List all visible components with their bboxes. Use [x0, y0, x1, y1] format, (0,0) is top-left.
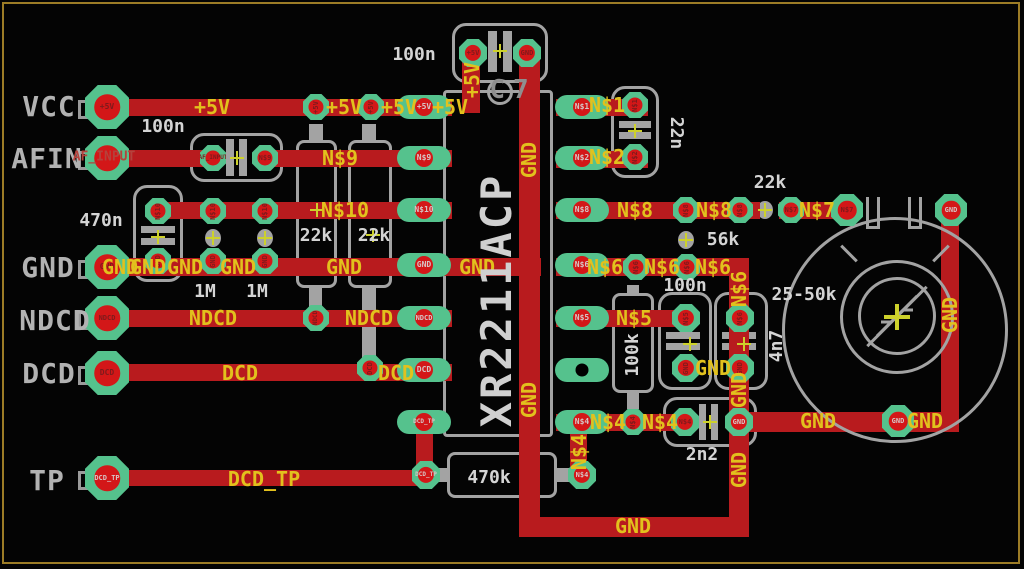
pad-1m-b-top[interactable]: N$10	[252, 198, 278, 224]
net-label: GND	[729, 452, 749, 488]
pad-dcd[interactable]: DCD	[85, 351, 129, 395]
net-label: GND	[800, 411, 836, 431]
net-label: GND	[326, 257, 362, 277]
net-label: N$2	[589, 147, 625, 167]
net-label: DCD_TP	[228, 469, 300, 489]
pad-470n-top[interactable]: N$10	[145, 198, 171, 224]
net-label: N$4	[590, 412, 626, 432]
value-label-100n-filter: 100n	[663, 277, 706, 295]
net-label: GND	[940, 297, 960, 333]
pad-1m-a-top[interactable]: N$10	[200, 198, 226, 224]
origin-cross-icon	[206, 231, 220, 245]
net-label: +5V	[326, 97, 362, 117]
net-label: GND	[729, 372, 749, 408]
net-label: GND	[519, 382, 539, 418]
origin-cross-icon	[679, 233, 693, 247]
resistor-lead	[627, 285, 639, 295]
net-label: GND	[907, 411, 943, 431]
potentiometer-tab	[908, 197, 922, 229]
resistor-lead	[362, 124, 376, 142]
chip-pad-n10[interactable]: N$10	[397, 198, 451, 222]
chip-ref-label: C7	[489, 77, 536, 103]
pad-vcc[interactable]: +5V	[85, 85, 129, 129]
origin-cross-icon	[884, 304, 910, 330]
net-label: N$4	[569, 434, 589, 470]
io-label-gnd: GND	[21, 254, 75, 282]
net-label: +5V	[462, 62, 482, 98]
net-label: DCD	[378, 363, 414, 383]
net-label: N$5	[616, 308, 652, 328]
resistor-lead	[556, 468, 569, 482]
net-label: GND	[130, 257, 166, 277]
origin-cross-icon	[628, 124, 642, 138]
net-label: N$1	[589, 95, 625, 115]
trace-gnd-center-vertical[interactable]	[519, 53, 540, 537]
pad-ndcd[interactable]: NDCD	[85, 296, 129, 340]
net-label: N$7	[799, 200, 835, 220]
pad-100n-filter-top[interactable]: N$5	[672, 304, 700, 332]
value-label-22k-b: 22k	[358, 227, 391, 245]
pad-470k-left[interactable]: DCD_TP	[412, 461, 440, 489]
net-label: N$8	[696, 200, 732, 220]
value-label-pot: 25-50k	[771, 286, 836, 304]
chip-pad-n9[interactable]: N$9	[397, 146, 451, 170]
value-label-470k: 470k	[467, 469, 510, 487]
net-label: GND	[615, 516, 651, 536]
origin-cross-icon	[758, 203, 772, 217]
pad-pot-n7[interactable]: N$7	[831, 194, 863, 226]
chip-pad-dcd-tp[interactable]: DCD_TP	[397, 410, 451, 434]
pad-22n-top[interactable]: N$1	[622, 92, 648, 118]
net-label: DCD	[222, 363, 258, 383]
origin-cross-icon	[230, 151, 244, 165]
net-label: NDCD	[189, 308, 237, 328]
value-label-1m-a: 1M	[194, 283, 216, 301]
net-label: GND	[695, 358, 731, 378]
value-label-1m-b: 1M	[246, 283, 268, 301]
pad-4n7-top[interactable]: N$6	[726, 304, 754, 332]
origin-cross-icon	[151, 230, 165, 244]
origin-cross-icon	[703, 415, 717, 429]
chip-pad-n8[interactable]: N$8	[555, 198, 609, 222]
io-label-dcd: DCD	[22, 360, 76, 388]
net-label: GND	[167, 257, 203, 277]
chip-pad-nc[interactable]	[555, 358, 609, 382]
chip-pad-n5[interactable]: N$5	[555, 306, 609, 330]
io-label-tp: TP	[29, 467, 65, 495]
resistor-lead	[627, 391, 639, 409]
net-label-af-input-red: AF_INPUT	[73, 151, 136, 164]
origin-cross-icon	[258, 231, 272, 245]
value-label-100k: 100k	[624, 333, 642, 376]
pad-c-top-gnd[interactable]: GND	[513, 39, 541, 67]
net-label: N$8	[617, 200, 653, 220]
net-label: GND	[220, 257, 256, 277]
origin-cross-icon	[493, 44, 507, 58]
net-label: N$4	[642, 412, 678, 432]
net-label: GND	[519, 142, 539, 178]
chip-part-label: XR2211ACP	[476, 173, 518, 428]
io-label-ndcd: NDCD	[19, 307, 90, 335]
pad-22k-left-bottom[interactable]: NDCD	[303, 305, 329, 331]
net-label: +5V	[432, 97, 468, 117]
pad-pot-gnd-top[interactable]: GND	[935, 194, 967, 226]
chip-pad-ndcd[interactable]: NDCD	[397, 306, 451, 330]
value-label-22n: 22n	[667, 117, 685, 150]
value-label-22k-c: 22k	[754, 174, 787, 192]
chip-pad-gnd[interactable]: GND	[397, 253, 451, 277]
potentiometer-tab	[866, 197, 880, 229]
pad-c-af-2[interactable]: N$9	[252, 145, 278, 171]
value-label-c-af: 100n	[141, 118, 184, 136]
value-label-2n2: 2n2	[686, 446, 719, 464]
origin-cross-icon	[737, 337, 751, 351]
origin-cross-icon	[683, 337, 697, 351]
value-label-c-top: 100n	[392, 46, 435, 64]
net-label: N$10	[321, 200, 369, 220]
net-label: N$9	[322, 148, 358, 168]
net-label: N$6	[695, 257, 731, 277]
value-label-56k: 56k	[707, 231, 740, 249]
pad-tp[interactable]: DCD_TP	[85, 456, 129, 500]
net-label: N$6	[587, 257, 623, 277]
net-label: N$6	[644, 257, 680, 277]
pad-c-af-1[interactable]: AF_INPUT	[200, 145, 226, 171]
net-label: +5V	[194, 97, 230, 117]
value-label-22k-a: 22k	[300, 227, 333, 245]
net-label: +5V	[381, 97, 417, 117]
pad-2n2-right[interactable]: GND	[725, 408, 753, 436]
pad-22n-bottom[interactable]: N$2	[622, 144, 648, 170]
net-label: N$6	[729, 271, 749, 307]
io-label-vcc: VCC	[22, 93, 76, 121]
pcb-board: +5V GND NDCD DCD DCD_TP +5V N$9 N$10 GND…	[0, 0, 1024, 569]
net-label: NDCD	[345, 308, 393, 328]
resistor-lead	[309, 124, 323, 142]
value-label-4n7: 4n7	[768, 330, 786, 363]
value-label-470n: 470n	[79, 212, 122, 230]
